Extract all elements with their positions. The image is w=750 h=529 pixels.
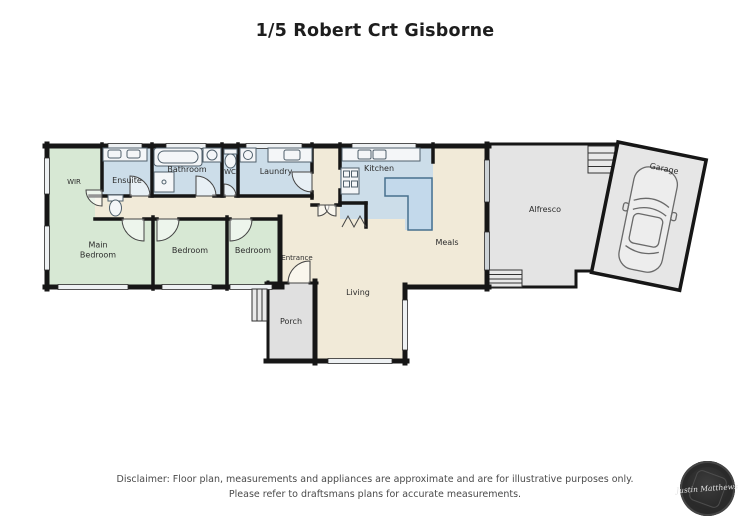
label-bathroom: Bathroom bbox=[167, 165, 206, 175]
toilet-icon bbox=[108, 195, 123, 216]
label-entrance: Entrance bbox=[281, 254, 312, 262]
toilet-icon bbox=[224, 149, 237, 168]
floor-plan-drawing bbox=[0, 0, 750, 529]
label-bedroom-2: Bedroom bbox=[172, 246, 208, 256]
double-vanity-icon bbox=[103, 148, 147, 161]
label-wir: WIR bbox=[67, 178, 81, 186]
floor-plan-page: 1/5 Robert Crt Gisborne bbox=[0, 0, 750, 529]
label-ensuite: Ensuite bbox=[112, 176, 142, 186]
label-living: Living bbox=[346, 288, 370, 298]
label-bedroom-3: Bedroom bbox=[235, 246, 271, 256]
kitchen-sink-icon bbox=[342, 148, 420, 161]
basin-icon bbox=[203, 148, 221, 162]
label-alfresco: Alfresco bbox=[529, 205, 561, 215]
label-wc: WC bbox=[224, 168, 236, 176]
label-laundry: Laundry bbox=[260, 167, 293, 177]
photographer-logo: Justin Matthews bbox=[680, 461, 735, 516]
bifold-door-icon bbox=[342, 216, 366, 227]
stove-icon bbox=[341, 168, 359, 194]
stairs-icon bbox=[489, 270, 522, 287]
label-porch: Porch bbox=[280, 317, 302, 327]
island-bench bbox=[385, 178, 432, 230]
shower-icon bbox=[154, 172, 174, 192]
bathtub-icon bbox=[154, 148, 202, 166]
label-meals: Meals bbox=[435, 238, 458, 248]
stairs-icon bbox=[252, 289, 267, 321]
label-kitchen: Kitchen bbox=[364, 164, 394, 174]
floor-plan: WIR Ensuite Bathroom WC Laundry Kitchen … bbox=[0, 0, 750, 529]
label-main-bedroom: Main Bedroom bbox=[74, 240, 122, 259]
laundry-trough-icon bbox=[240, 148, 312, 162]
